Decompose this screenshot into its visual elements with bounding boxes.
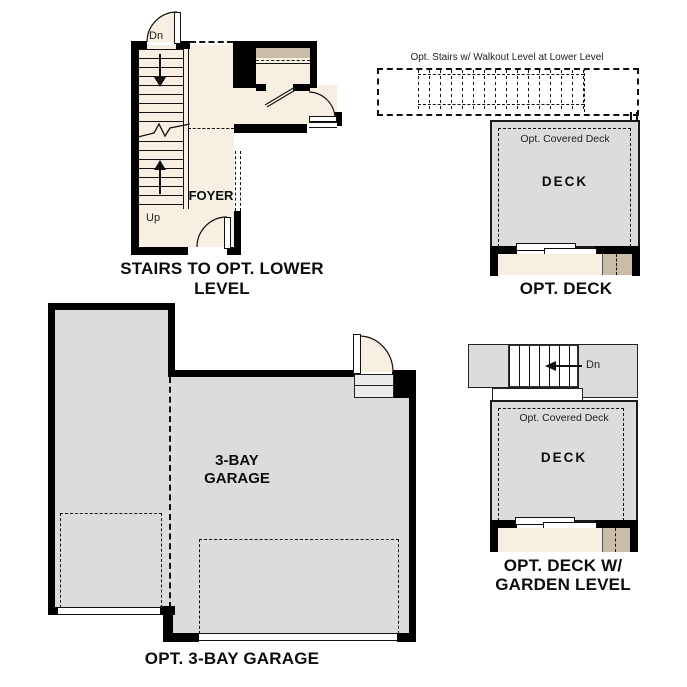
bay-separator-dashed-line <box>169 377 171 608</box>
closet-rod-line <box>256 63 310 64</box>
door-leaf <box>224 217 231 249</box>
garage-door-sill <box>58 607 160 615</box>
closet-shelf <box>256 48 310 58</box>
door-swing-arc-icon <box>197 217 227 247</box>
dashed-line <box>418 74 584 75</box>
wall-segment <box>632 246 640 276</box>
closet-door-leaf-icon <box>264 86 298 107</box>
deck-label: DECK <box>490 174 640 189</box>
wall-segment <box>131 247 188 255</box>
plan-caption: OPT. DECK <box>466 279 666 299</box>
covered-deck-label: Opt. Covered Deck <box>490 133 640 145</box>
door-leaf <box>353 334 361 374</box>
garage-label-line2: GARAGE <box>167 470 307 488</box>
wall-segment <box>48 303 55 615</box>
down-arrow-icon <box>556 365 582 367</box>
opt-stairs-note: Opt. Stairs w/ Walkout Level at Lower Le… <box>377 52 637 63</box>
garage-bay-dashed-outline <box>60 513 162 608</box>
fireplace <box>602 254 632 275</box>
stair-direction-label: Dn <box>149 30 163 42</box>
down-arrow-icon <box>159 54 161 78</box>
wall-segment <box>490 246 498 276</box>
wall-segment <box>168 370 356 377</box>
wall-segment <box>234 124 307 133</box>
stair-direction-label: Dn <box>586 359 600 371</box>
covered-deck-label: Opt. Covered Deck <box>490 412 638 424</box>
dashed-wall-line <box>240 151 241 211</box>
garage-label: 3-BAY GARAGE <box>167 452 307 488</box>
door-leaf <box>174 12 181 44</box>
entry-door-swing-arc-icon <box>309 92 336 119</box>
dashed-opening-line <box>190 41 233 43</box>
wall-segment <box>233 41 317 48</box>
down-arrowhead-icon <box>154 77 166 87</box>
entry-threshold <box>309 122 337 128</box>
wall-segment <box>48 303 175 310</box>
garage-label-line1: 3-BAY <box>167 452 307 470</box>
wall-segment <box>48 607 58 615</box>
dashed-line <box>418 104 584 105</box>
stair-direction-label: Up <box>146 212 160 224</box>
deck-label: DECK <box>490 450 638 465</box>
dashed-line <box>616 254 617 275</box>
garage-bay-dashed-outline <box>199 539 399 634</box>
floorplan-sheet: Dn Up FOYER STAIRS TO OPT. LOWER LEVEL O… <box>0 0 687 687</box>
stair-break-line-icon <box>134 118 190 144</box>
closet-shelf-dashed-line <box>256 60 310 61</box>
wall-segment <box>233 41 256 88</box>
stair-run-down <box>139 49 183 129</box>
dashed-line <box>584 68 585 112</box>
plan-caption-line1: OPT. DECK W/ <box>463 556 663 575</box>
left-arrowhead-icon <box>545 361 556 371</box>
dashed-line <box>615 528 616 552</box>
door-swing-arc-icon <box>359 336 393 372</box>
dashed-overhead-line <box>188 128 234 129</box>
fireplace <box>602 528 630 552</box>
wall-segment <box>490 520 498 552</box>
foyer-label: FOYER <box>186 188 236 203</box>
up-arrowhead-icon <box>154 160 166 170</box>
plan-caption: STAIRS TO OPT. LOWER LEVEL <box>91 259 353 299</box>
wall-segment <box>397 633 416 642</box>
stair-run-up <box>139 141 183 209</box>
upper-floor-block <box>578 344 638 398</box>
wall-segment <box>630 520 638 552</box>
plan-caption: OPT. 3-BAY GARAGE <box>82 649 382 669</box>
wall-segment <box>409 370 416 642</box>
garage-door-sill <box>199 633 397 641</box>
wall-segment <box>131 41 147 49</box>
wall-segment <box>310 41 317 88</box>
wall-segment <box>163 633 199 642</box>
wall-segment <box>168 303 175 377</box>
step <box>354 385 394 398</box>
plan-caption-line2: GARDEN LEVEL <box>463 575 663 594</box>
up-arrow-icon <box>159 170 161 194</box>
wall-segment <box>131 41 139 255</box>
plan-caption: OPT. DECK W/ GARDEN LEVEL <box>463 556 663 594</box>
